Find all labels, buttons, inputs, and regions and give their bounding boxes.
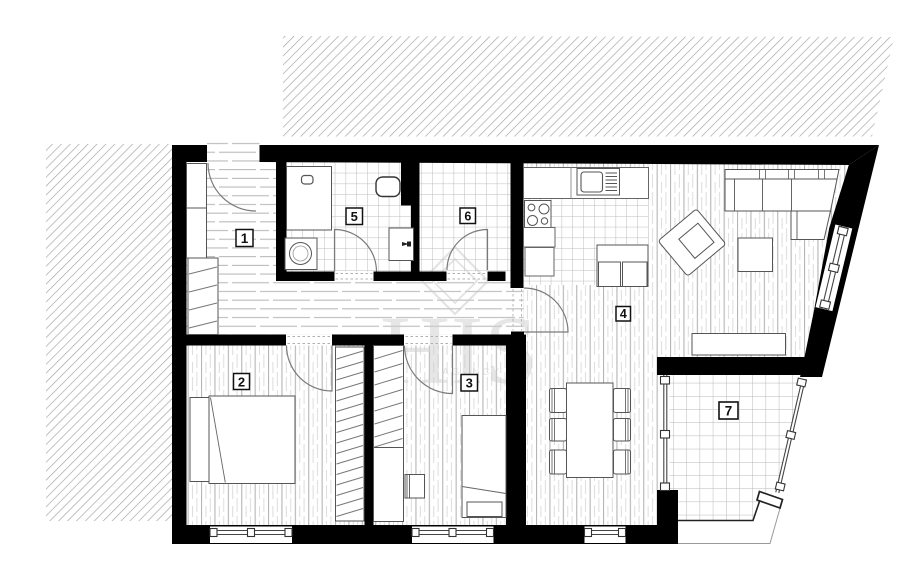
svg-text:1: 1 [241,231,249,246]
svg-text:7: 7 [725,404,733,419]
svg-text:2: 2 [238,374,245,389]
svg-text:6: 6 [464,210,471,224]
svg-text:3: 3 [466,376,473,391]
svg-text:5: 5 [351,209,358,224]
svg-text:4: 4 [620,307,627,321]
